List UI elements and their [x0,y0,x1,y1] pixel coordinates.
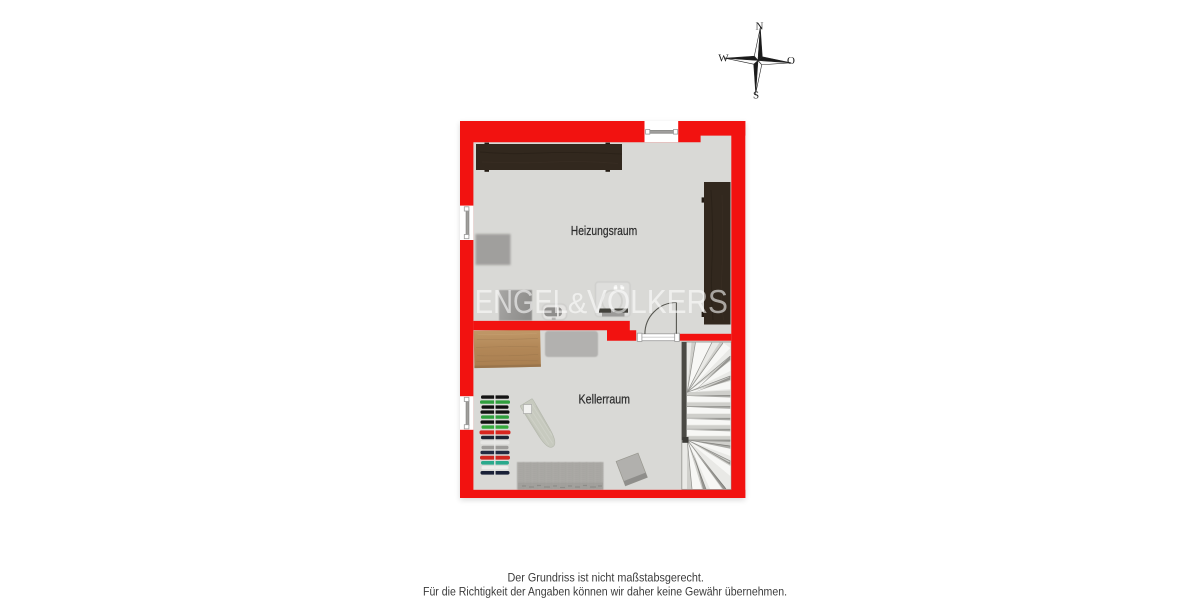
svg-text:S: S [753,89,759,101]
svg-text:Kellerraum: Kellerraum [579,391,631,406]
svg-text:W: W [718,53,729,65]
svg-text:Der Grundriss ist nicht maßsta: Der Grundriss ist nicht maßstabsgerecht. [507,571,704,585]
svg-text:Heizungsraum: Heizungsraum [571,223,638,238]
svg-text:Für die Richtigkeit der Angabe: Für die Richtigkeit der Angaben können w… [423,584,787,598]
svg-text:ENGEL: ENGEL [475,283,568,320]
svg-text:VÖLKERS: VÖLKERS [587,283,728,320]
svg-text:O: O [787,55,795,67]
svg-text:&: & [568,288,587,320]
svg-text:N: N [756,21,764,33]
